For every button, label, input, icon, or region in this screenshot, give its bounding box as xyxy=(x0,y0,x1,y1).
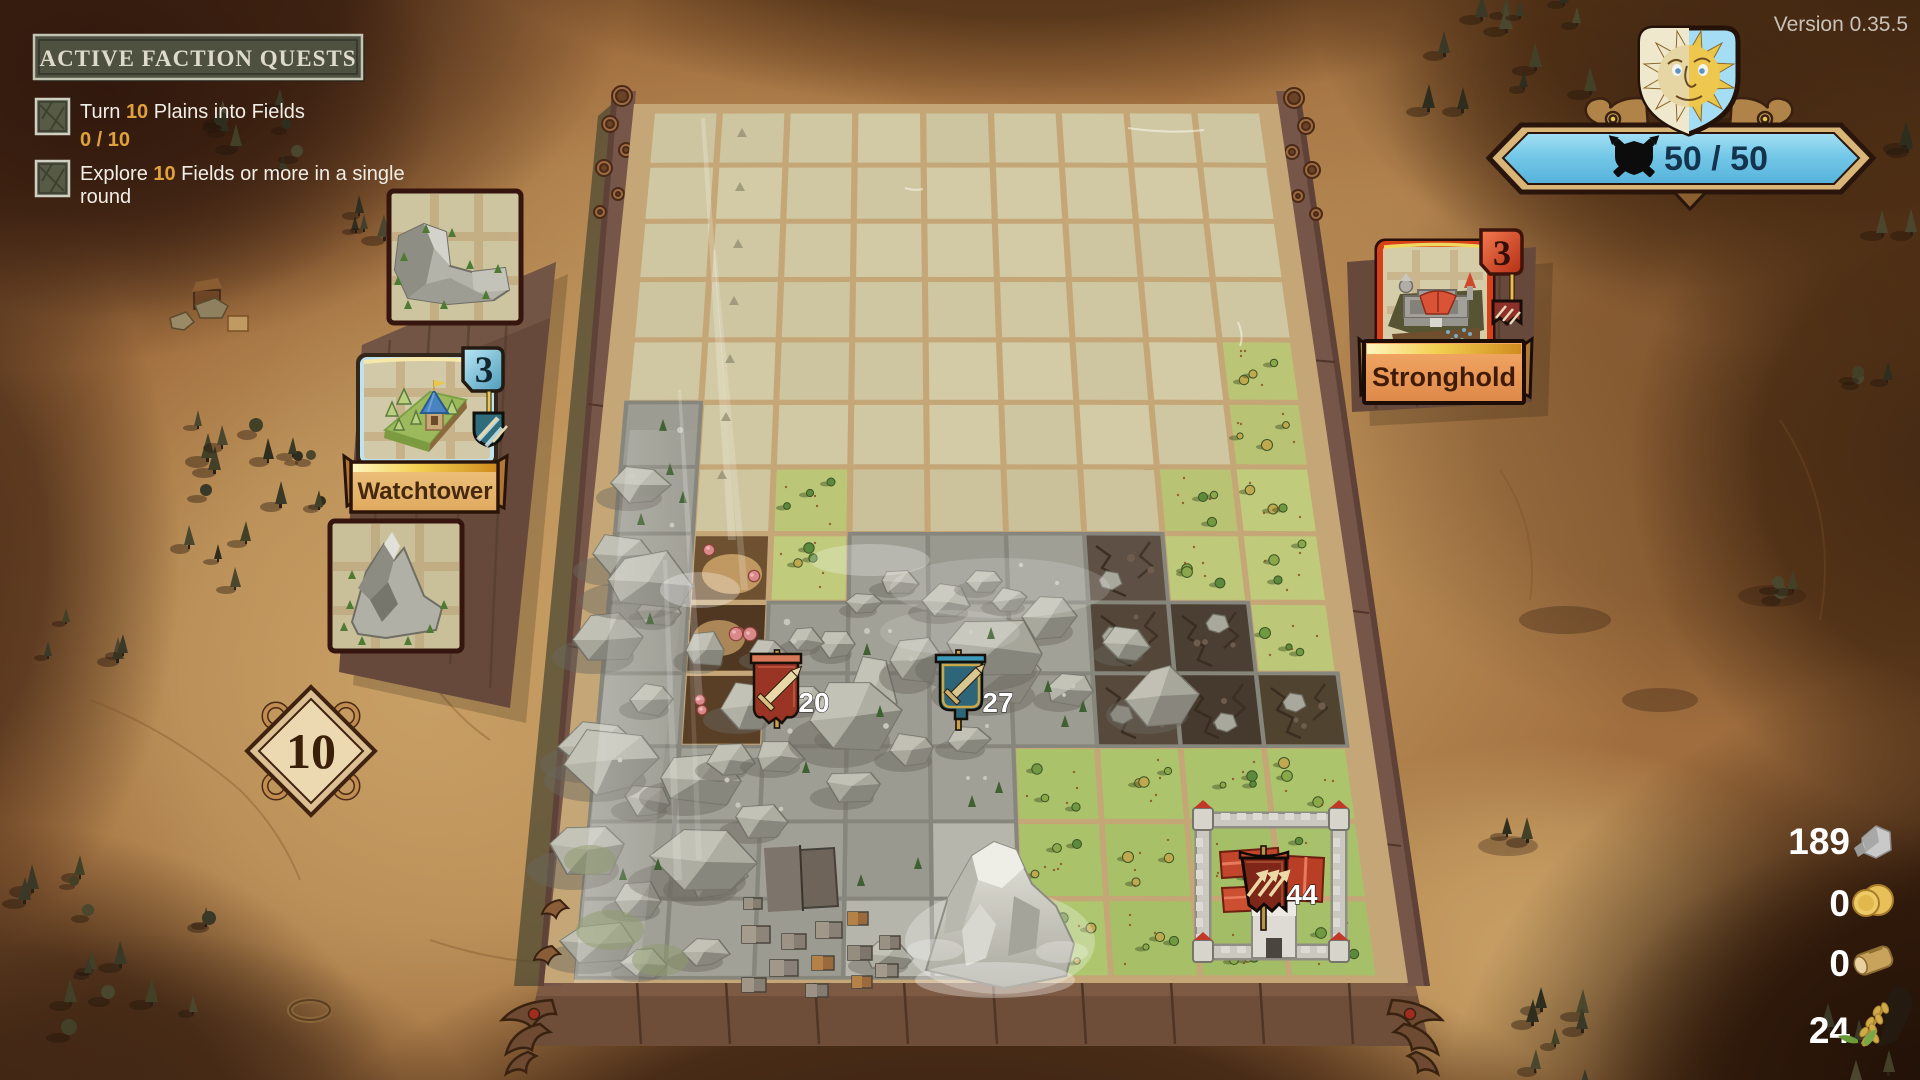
svg-text:20: 20 xyxy=(798,687,829,718)
svg-text:Version 0.35.5: Version 0.35.5 xyxy=(1774,13,1908,36)
svg-text:50 / 50: 50 / 50 xyxy=(1664,140,1768,178)
svg-text:0: 0 xyxy=(1829,883,1850,924)
svg-text:3: 3 xyxy=(475,350,494,391)
svg-text:0: 0 xyxy=(1829,943,1850,984)
svg-text:44: 44 xyxy=(1286,879,1318,910)
svg-text:round: round xyxy=(80,186,131,208)
svg-text:10: 10 xyxy=(286,723,336,779)
svg-text:27: 27 xyxy=(982,687,1013,718)
svg-text:Stronghold: Stronghold xyxy=(1372,362,1516,392)
svg-text:24: 24 xyxy=(1809,1010,1851,1051)
svg-text:Explore 10 Fields or more in a: Explore 10 Fields or more in a single xyxy=(80,163,405,185)
svg-text:ACTIVE FACTION QUESTS: ACTIVE FACTION QUESTS xyxy=(39,46,356,71)
svg-text:189: 189 xyxy=(1788,821,1850,862)
svg-text:0 / 10: 0 / 10 xyxy=(80,129,130,151)
svg-text:3: 3 xyxy=(1493,233,1511,273)
svg-text:Watchtower: Watchtower xyxy=(357,478,492,505)
svg-text:Turn 10 Plains into Fields: Turn 10 Plains into Fields xyxy=(80,101,305,123)
